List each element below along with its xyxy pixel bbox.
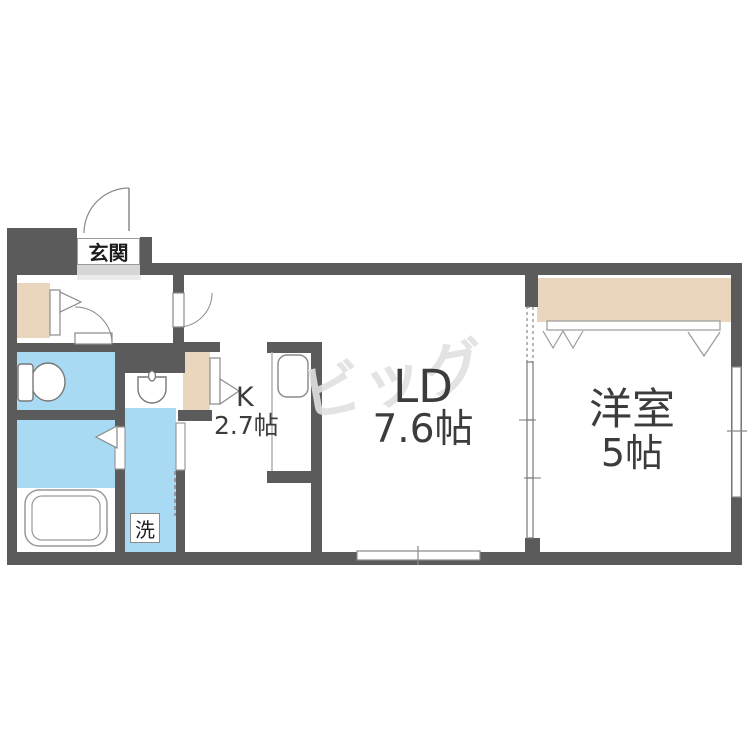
kitchen-sink xyxy=(278,355,308,397)
closet-folding-door-marks-left xyxy=(543,331,583,348)
entrance-door-swing-arc xyxy=(84,188,129,233)
closet-folding-door-mark-right xyxy=(688,332,720,356)
partition-open-section xyxy=(527,307,533,362)
partition-sliding-panel-1 xyxy=(527,362,533,420)
hall-door-leaf xyxy=(75,333,112,344)
washroom-sliding-door xyxy=(176,423,185,470)
bedroom-window xyxy=(732,367,741,497)
western-room-label: 洋室 xyxy=(589,388,675,433)
bathroom-door-marker xyxy=(96,426,117,448)
western-room-size-label: 5帖 xyxy=(601,433,663,475)
closet-door-track xyxy=(547,321,720,330)
living-dining-size-label: 7.6帖 xyxy=(372,409,473,452)
entrance-label: 玄関 xyxy=(77,238,140,265)
bathtub-inner xyxy=(32,496,100,540)
kitchen-door-leaf xyxy=(173,293,184,327)
partition-sliding-panel-2 xyxy=(527,420,533,478)
toilet-bowl xyxy=(31,363,65,401)
partition-sliding-panel-3 xyxy=(527,478,533,538)
washing-machine-label: 洗 xyxy=(130,513,160,543)
kitchen-size-label: 2.7帖 xyxy=(214,406,279,442)
shoe-closet-door xyxy=(50,290,60,335)
kitchen-cabinet-door xyxy=(210,358,220,404)
living-dining-label: LD xyxy=(393,364,453,409)
shoe-closet-door-marker xyxy=(60,292,81,312)
floorplan-canvas: ビッグ 玄関 K 2.7帖 LD 7.6帖 洋室 5帖 洗 xyxy=(0,0,750,750)
washbasin-faucet xyxy=(149,371,156,381)
toilet-tank xyxy=(18,364,33,401)
